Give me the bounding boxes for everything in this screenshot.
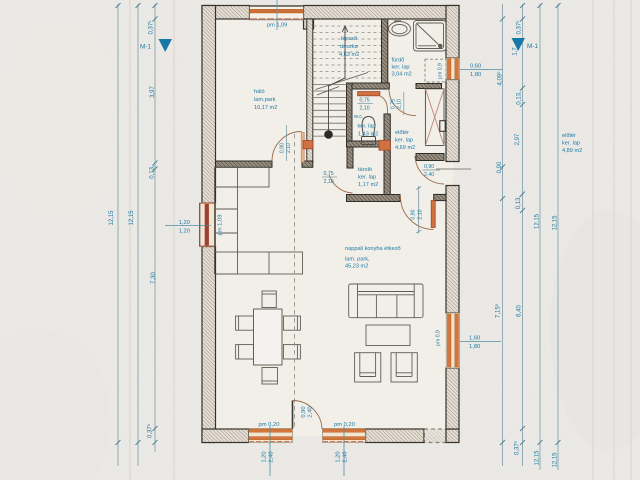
svg-text:3,04 m2: 3,04 m2 bbox=[392, 72, 412, 78]
svg-text:lépcső: lépcső bbox=[341, 36, 357, 42]
svg-text:1,20: 1,20 bbox=[179, 220, 190, 226]
svg-text:2,97: 2,97 bbox=[515, 133, 521, 145]
svg-text:4,69 m2: 4,69 m2 bbox=[395, 145, 415, 151]
svg-text:ker. lap: ker. lap bbox=[358, 124, 376, 130]
svg-text:10,17 m2: 10,17 m2 bbox=[254, 105, 277, 111]
svg-text:0,90: 0,90 bbox=[497, 161, 503, 173]
svg-text:12,15: 12,15 bbox=[535, 450, 541, 466]
svg-text:2,10: 2,10 bbox=[418, 209, 424, 219]
svg-text:0,60: 0,60 bbox=[470, 64, 481, 70]
svg-text:M-1: M-1 bbox=[527, 43, 538, 50]
svg-text:w.c.: w.c. bbox=[353, 114, 364, 120]
svg-text:2,40: 2,40 bbox=[269, 451, 275, 462]
svg-text:3,97: 3,97 bbox=[150, 86, 156, 98]
svg-text:lam. park,: lam. park, bbox=[345, 257, 370, 263]
svg-text:12,15: 12,15 bbox=[553, 452, 559, 468]
svg-text:deszka: deszka bbox=[340, 44, 359, 50]
svg-text:háló: háló bbox=[254, 89, 265, 95]
svg-text:pm 0,20: pm 0,20 bbox=[334, 422, 355, 428]
svg-text:2,10: 2,10 bbox=[397, 99, 403, 109]
svg-text:0,90: 0,90 bbox=[280, 143, 286, 153]
svg-text:pm 0,20: pm 0,20 bbox=[259, 422, 280, 428]
svg-text:2,40: 2,40 bbox=[343, 451, 349, 462]
svg-text:1,80: 1,80 bbox=[470, 72, 481, 78]
svg-text:6,40: 6,40 bbox=[517, 305, 523, 317]
svg-text:0,75: 0,75 bbox=[324, 171, 334, 177]
svg-text:4,63 m2: 4,63 m2 bbox=[339, 52, 359, 58]
svg-text:0,90: 0,90 bbox=[424, 164, 434, 170]
svg-text:pm 1,09: pm 1,09 bbox=[218, 215, 224, 236]
svg-text:ker. lap: ker. lap bbox=[395, 138, 413, 144]
svg-text:előtér: előtér bbox=[562, 133, 576, 139]
svg-text:M-1: M-1 bbox=[140, 44, 151, 51]
svg-text:12,15: 12,15 bbox=[553, 215, 559, 231]
svg-text:1,20: 1,20 bbox=[336, 451, 342, 462]
svg-text:2,10: 2,10 bbox=[286, 143, 292, 153]
svg-text:ker. lap: ker. lap bbox=[358, 175, 376, 181]
svg-text:0,13,: 0,13, bbox=[516, 196, 522, 210]
svg-text:1,20: 1,20 bbox=[179, 229, 190, 235]
svg-text:lam.park: lam.park bbox=[254, 97, 276, 103]
svg-text:2,10: 2,10 bbox=[360, 106, 370, 112]
svg-text:7,30: 7,30 bbox=[151, 272, 157, 284]
svg-text:pm 0,9: pm 0,9 bbox=[438, 63, 444, 79]
svg-text:0,75: 0,75 bbox=[360, 98, 370, 104]
svg-text:nappali konyha étkező: nappali konyha étkező bbox=[345, 246, 401, 252]
svg-text:2,10: 2,10 bbox=[324, 179, 334, 185]
svg-text:0,13,: 0,13, bbox=[150, 165, 156, 179]
svg-text:0,90: 0,90 bbox=[411, 209, 417, 219]
svg-text:1,43 m2: 1,43 m2 bbox=[358, 132, 378, 138]
svg-text:1,60: 1,60 bbox=[469, 336, 480, 342]
svg-text:2,40: 2,40 bbox=[308, 406, 314, 417]
svg-text:4,89 m2: 4,89 m2 bbox=[562, 148, 582, 154]
svg-text:2,40: 2,40 bbox=[424, 172, 434, 178]
svg-text:ker. lap: ker. lap bbox=[392, 65, 410, 71]
svg-text:0,13,: 0,13, bbox=[517, 91, 523, 105]
svg-text:12,15: 12,15 bbox=[109, 210, 115, 226]
svg-text:0,90: 0,90 bbox=[301, 406, 307, 417]
svg-text:előtér: előtér bbox=[395, 130, 409, 136]
svg-text:pm 0,9: pm 0,9 bbox=[436, 330, 442, 346]
svg-text:1,17 m2: 1,17 m2 bbox=[358, 182, 378, 188]
svg-text:tároló: tároló bbox=[358, 167, 372, 173]
svg-text:12,15: 12,15 bbox=[129, 210, 135, 226]
svg-text:ker. lap: ker. lap bbox=[562, 141, 580, 147]
svg-text:1,80: 1,80 bbox=[469, 344, 480, 350]
svg-text:1,20: 1,20 bbox=[262, 451, 268, 462]
svg-text:45,23 m2: 45,23 m2 bbox=[345, 264, 368, 270]
svg-text:pm 1,09: pm 1,09 bbox=[267, 23, 287, 29]
svg-text:fürdő: fürdő bbox=[392, 58, 405, 64]
svg-text:12,15: 12,15 bbox=[535, 213, 541, 229]
